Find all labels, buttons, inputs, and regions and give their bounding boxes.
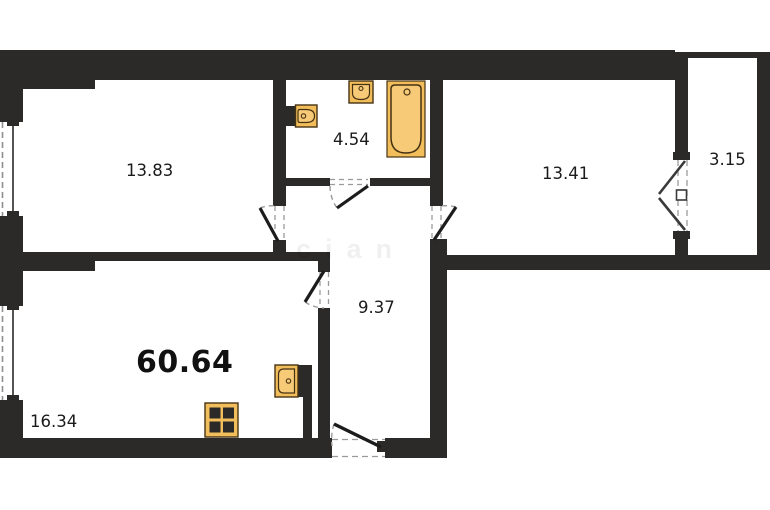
wall-segment	[430, 198, 443, 206]
area-label-hallway: 9.37	[358, 298, 395, 317]
wall-segment	[273, 198, 286, 206]
wall-segment	[673, 231, 690, 239]
wall-segment	[0, 50, 675, 80]
total-area-label: 60.64	[136, 345, 233, 380]
wall-segment	[430, 80, 443, 198]
wall-segment	[273, 178, 330, 186]
kitchen-sink-icon	[275, 365, 303, 397]
area-label-bathroom: 4.54	[333, 130, 370, 149]
area-label-bedroom: 13.41	[542, 164, 589, 183]
toilet-icon	[286, 105, 317, 127]
door-bedroom	[432, 206, 456, 240]
door-handle	[677, 190, 687, 200]
window-living	[3, 120, 20, 217]
wall-segment	[430, 239, 447, 458]
door-kitchen	[305, 271, 329, 308]
wall-segment	[273, 240, 286, 254]
wall-segment	[673, 152, 690, 160]
watermark: cian	[296, 234, 406, 265]
wall-segment	[0, 438, 332, 458]
wall-segment	[318, 308, 330, 438]
wall-segment	[675, 58, 688, 154]
area-label-living-room: 13.83	[126, 161, 173, 180]
door-entrance	[332, 424, 385, 457]
wall-sink-icon	[349, 81, 373, 103]
wall-segment	[430, 255, 770, 270]
wall-segment	[675, 52, 758, 58]
wall-segment	[757, 52, 770, 270]
bathtub-icon	[387, 81, 425, 157]
wall-segment	[23, 80, 95, 89]
floor-plan: cian 13.83 4.54 13.41 3.15 9.37 16.34 60…	[0, 0, 770, 510]
door-living-room	[260, 206, 284, 241]
stove-icon	[205, 403, 238, 437]
door-bathroom	[330, 180, 368, 209]
wall-segment	[385, 438, 447, 458]
wall-segment	[0, 50, 23, 122]
area-label-kitchen: 16.34	[30, 412, 77, 431]
wall-segment	[303, 365, 312, 438]
balcony-french-door	[659, 160, 687, 231]
window-kitchen	[3, 304, 20, 401]
wall-segment	[0, 216, 23, 306]
wall-segment	[23, 261, 95, 271]
area-label-balcony: 3.15	[709, 150, 746, 169]
